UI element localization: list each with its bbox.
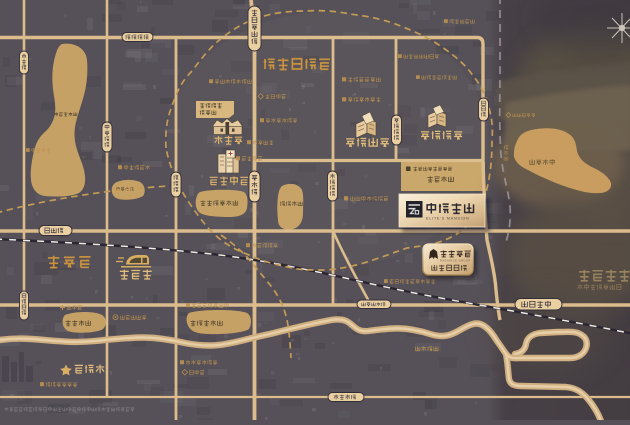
svg-text:ELITE'S MANSION: ELITE'S MANSION bbox=[426, 217, 470, 221]
svg-text:RADIANCE GROUP: RADIANCE GROUP bbox=[440, 259, 471, 263]
